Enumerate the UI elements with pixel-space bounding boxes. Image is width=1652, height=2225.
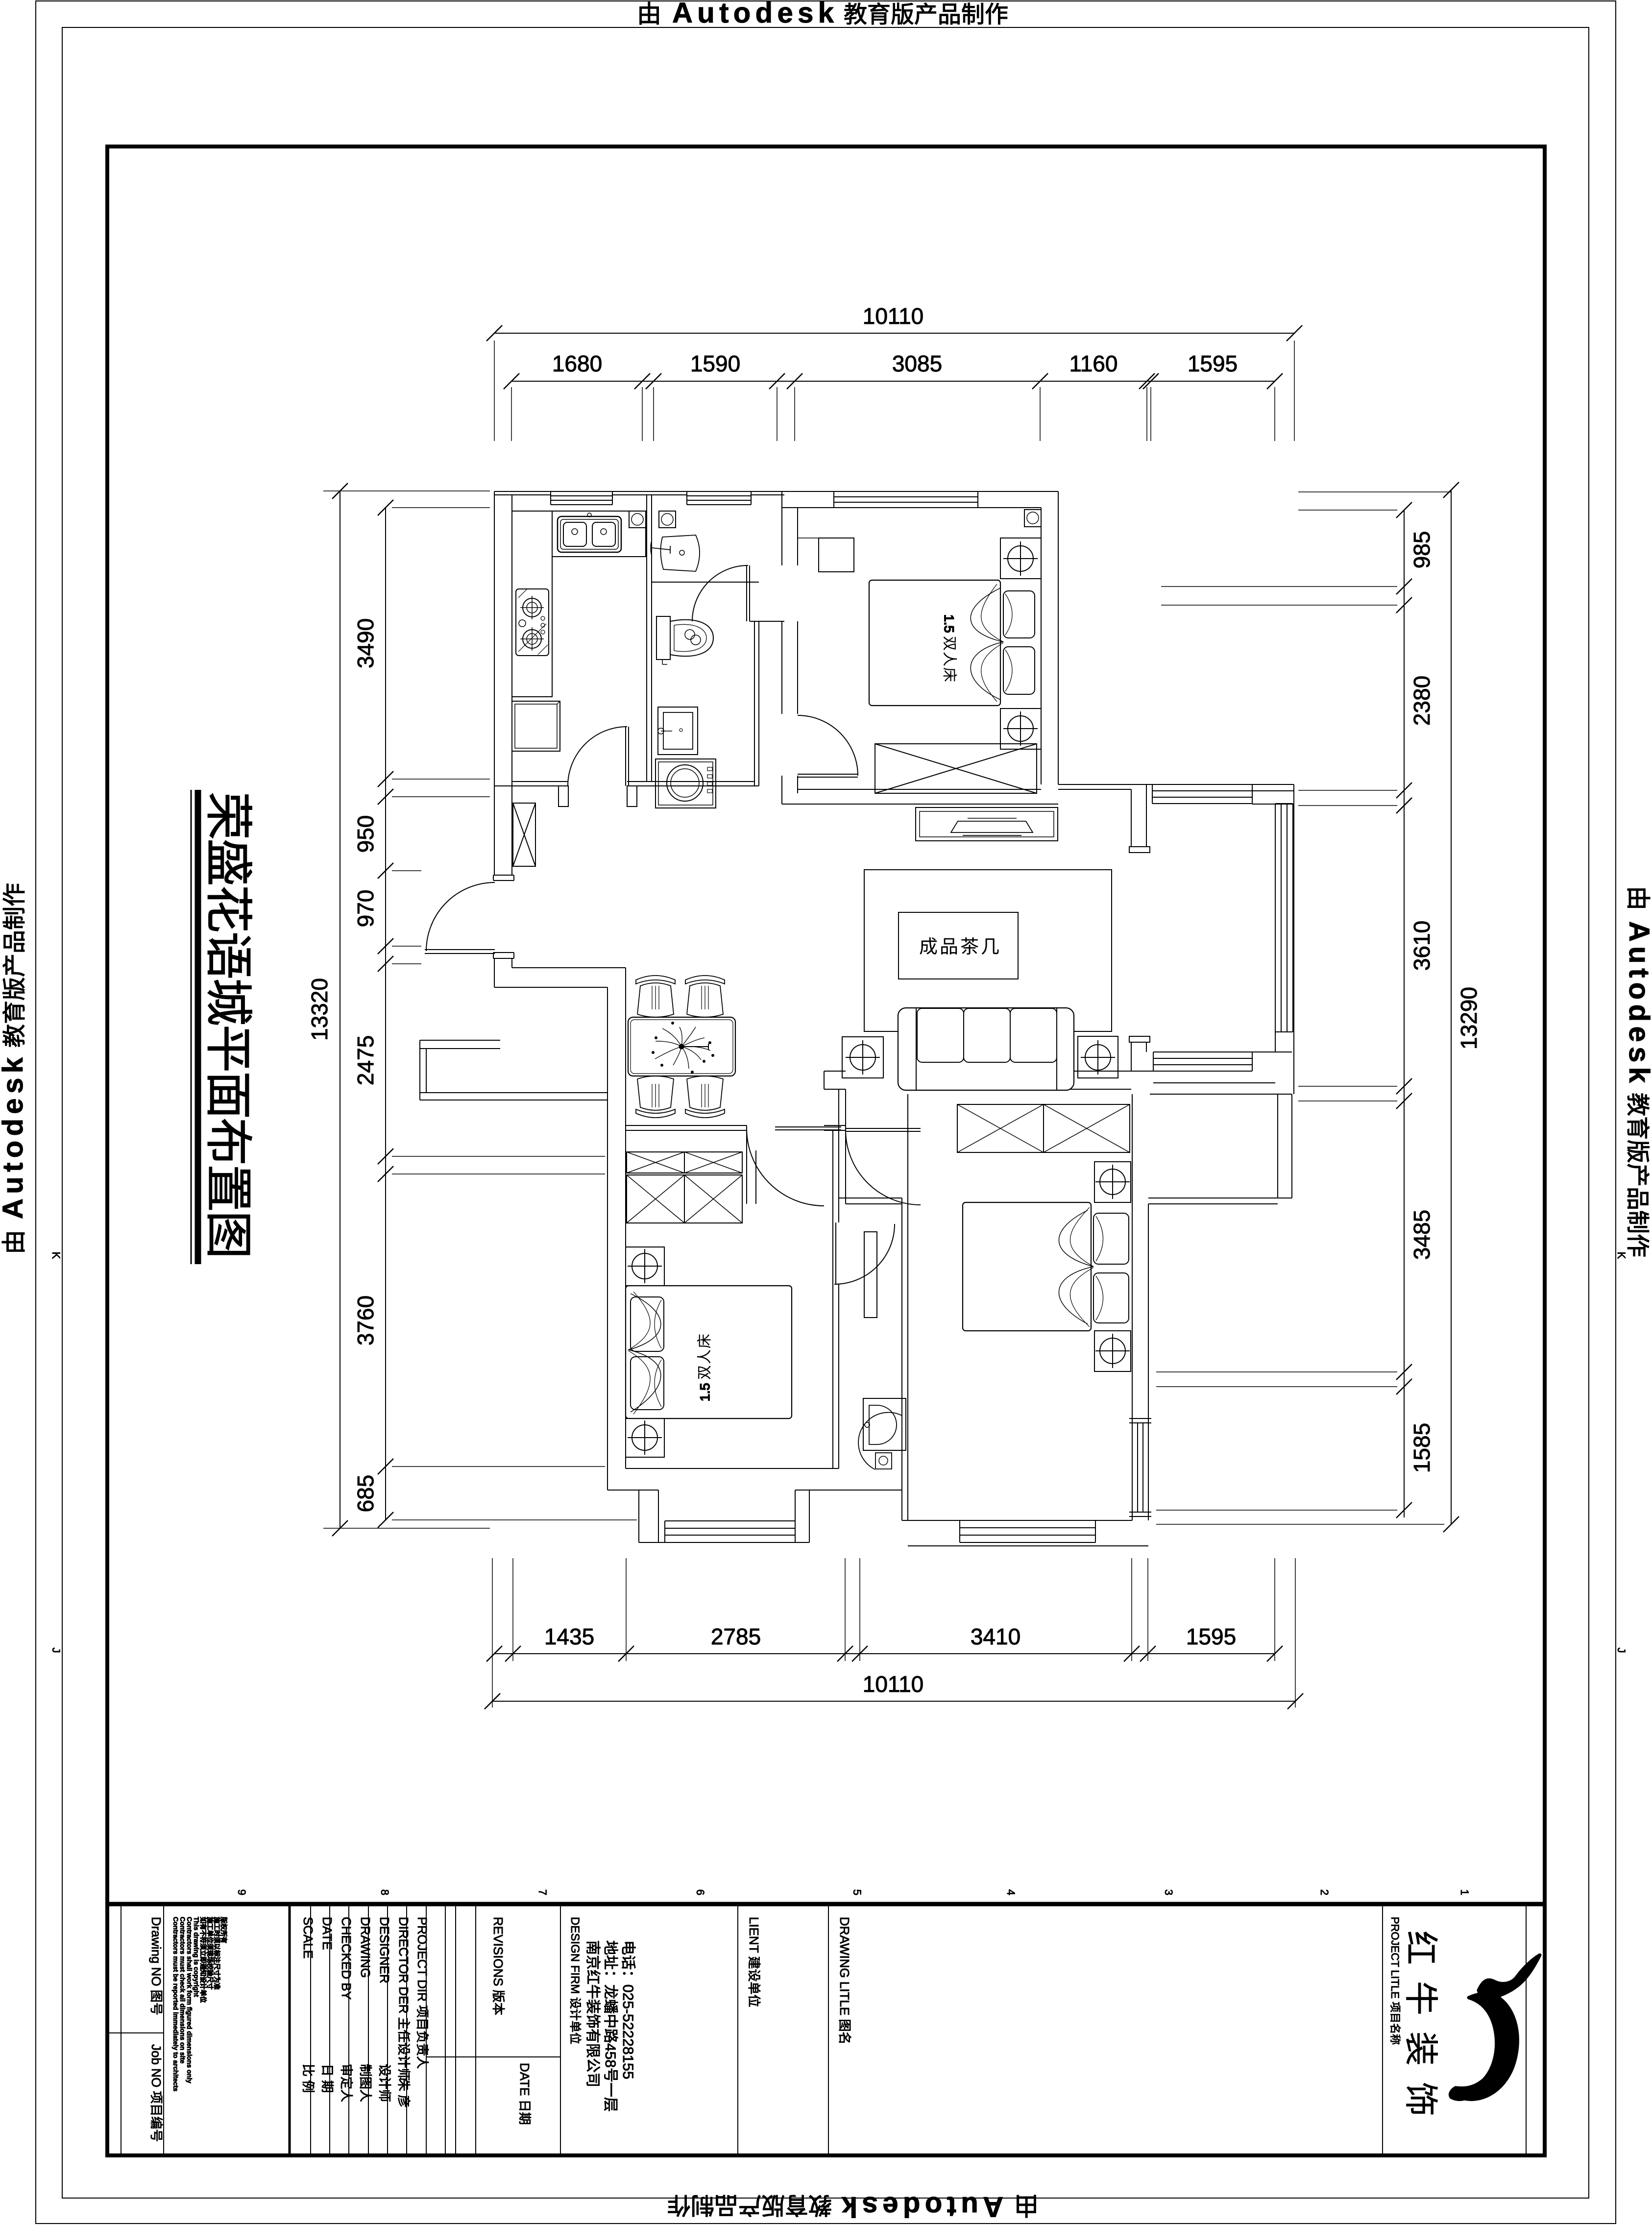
svg-text:1160: 1160 <box>1069 351 1118 376</box>
svg-text:1.5: 1.5 <box>698 1383 712 1401</box>
svg-text:K: K <box>1615 1252 1628 1259</box>
svg-text:DIRECTOR DER 主任设计师: DIRECTOR DER 主任设计师 <box>396 1917 411 2081</box>
svg-text:970: 970 <box>353 890 378 928</box>
svg-text:Contractors shall work form fi: Contractors shall work form figured dime… <box>186 1917 193 2083</box>
svg-text:Drawing NO 图号: Drawing NO 图号 <box>149 1917 164 2015</box>
svg-text:3485: 3485 <box>1409 1210 1434 1260</box>
svg-text:1595: 1595 <box>1188 351 1238 376</box>
svg-text:950: 950 <box>353 815 378 853</box>
svg-text:DRAWING: DRAWING <box>358 1917 373 1978</box>
svg-text:1.5: 1.5 <box>942 614 956 633</box>
svg-text:比 例: 比 例 <box>301 2064 316 2093</box>
svg-text:1595: 1595 <box>1186 1624 1236 1649</box>
svg-text:13320: 13320 <box>307 978 332 1041</box>
svg-text:Job NO 项目编号: Job NO 项目编号 <box>149 2044 164 2142</box>
svg-text:REVISIONS 版本: REVISIONS 版本 <box>491 1917 506 2015</box>
svg-text:9: 9 <box>236 1889 248 1895</box>
svg-text:DESIGN FIRM 设计单位: DESIGN FIRM 设计单位 <box>568 1917 582 2044</box>
svg-text:5: 5 <box>851 1889 863 1895</box>
svg-text:2: 2 <box>1318 1889 1331 1895</box>
svg-text:985: 985 <box>1409 531 1434 569</box>
svg-text:LIENT 建设单位: LIENT 建设单位 <box>747 1917 761 2007</box>
svg-text:设计师: 设计师 <box>377 2064 392 2102</box>
svg-text:3610: 3610 <box>1409 921 1434 971</box>
svg-text:CHECKED BY: CHECKED BY <box>339 1917 354 2000</box>
svg-text:PROJECT LITLE 项目名称: PROJECT LITLE 项目名称 <box>1389 1917 1401 2045</box>
svg-text:2475: 2475 <box>353 1035 378 1085</box>
svg-text:4: 4 <box>1005 1889 1017 1895</box>
svg-text:南京红牛装饰有限公司: 南京红牛装饰有限公司 <box>584 1940 601 2087</box>
svg-text:8: 8 <box>379 1889 391 1895</box>
svg-text:3085: 3085 <box>892 351 942 376</box>
svg-text:DATE 日期: DATE 日期 <box>517 2063 532 2125</box>
svg-text:685: 685 <box>353 1475 378 1513</box>
svg-text:施工时须以标注尺寸为准: 施工时须以标注尺寸为准 <box>213 1917 221 1990</box>
svg-text:1585: 1585 <box>1409 1423 1434 1473</box>
svg-text:1: 1 <box>1458 1889 1471 1895</box>
svg-text:7: 7 <box>536 1889 549 1895</box>
svg-text:朱 彦: 朱 彦 <box>396 2078 411 2107</box>
svg-text:13290: 13290 <box>1456 987 1482 1050</box>
svg-text:3: 3 <box>1163 1889 1175 1895</box>
svg-text:6: 6 <box>694 1889 706 1895</box>
svg-text:1680: 1680 <box>552 351 602 376</box>
svg-text:版权所有: 版权所有 <box>220 1917 228 1943</box>
svg-text:PROJECT DIR 项目负责人: PROJECT DIR 项目负责人 <box>415 1917 430 2069</box>
svg-text:1435: 1435 <box>544 1624 594 1649</box>
svg-text:2785: 2785 <box>711 1624 761 1649</box>
svg-text:3760: 3760 <box>353 1296 378 1345</box>
svg-text:日 期: 日 期 <box>320 2064 335 2093</box>
svg-text:如有不符须立即通知设计单位: 如有不符须立即通知设计单位 <box>199 1917 207 2003</box>
svg-text:DESIGNER: DESIGNER <box>377 1917 392 1983</box>
svg-text:Contractors must be reported i: Contractors must be reported immediately… <box>172 1917 179 2091</box>
svg-text:审定人: 审定人 <box>339 2064 354 2102</box>
svg-text:3490: 3490 <box>353 618 378 668</box>
svg-text:电话：025-52228155: 电话：025-52228155 <box>620 1940 636 2079</box>
svg-text:2380: 2380 <box>1409 676 1434 726</box>
svg-text:10110: 10110 <box>863 1671 924 1697</box>
svg-text:SCALE: SCALE <box>301 1917 316 1958</box>
svg-text:制图人: 制图人 <box>358 2064 373 2102</box>
svg-text:DRAWING LITLE 图名: DRAWING LITLE 图名 <box>837 1917 852 2045</box>
svg-text:10110: 10110 <box>863 303 924 329</box>
svg-text:DATE: DATE <box>320 1917 335 1950</box>
svg-text:1590: 1590 <box>690 351 740 376</box>
svg-text:This drawing is copyright: This drawing is copyright <box>193 1917 200 1997</box>
svg-text:Contractors must check all dim: Contractors must check all dimensions on… <box>179 1917 186 2064</box>
svg-text:地址：龙蟠中路458号一层: 地址：龙蟠中路458号一层 <box>602 1940 618 2112</box>
svg-text:J: J <box>50 1648 62 1653</box>
svg-text:K: K <box>50 1252 62 1259</box>
svg-text:J: J <box>1615 1648 1628 1653</box>
svg-text:3410: 3410 <box>971 1624 1020 1649</box>
svg-text:施工单位须现场校验尺寸: 施工单位须现场校验尺寸 <box>206 1917 214 1990</box>
